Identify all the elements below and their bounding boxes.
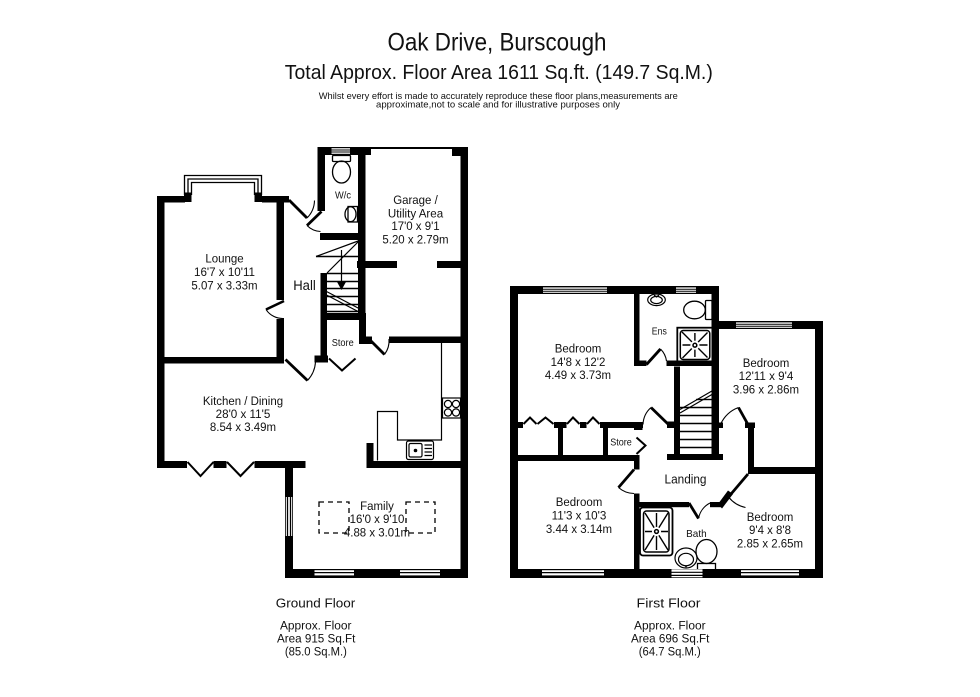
svg-text:Bedroom: Bedroom bbox=[747, 510, 794, 524]
svg-text:16'7 x 10'11: 16'7 x 10'11 bbox=[194, 265, 255, 279]
svg-text:5.07 x 3.33m: 5.07 x 3.33m bbox=[191, 279, 257, 293]
svg-text:Bedroom: Bedroom bbox=[743, 356, 790, 370]
svg-text:(64.7 Sq.M.): (64.7 Sq.M.) bbox=[639, 645, 701, 659]
svg-text:Family: Family bbox=[360, 499, 395, 513]
svg-text:Kitchen / Dining: Kitchen / Dining bbox=[203, 394, 283, 408]
svg-text:4.88 x 3.01m: 4.88 x 3.01m bbox=[344, 525, 410, 539]
svg-text:12'11 x 9'4: 12'11 x 9'4 bbox=[739, 369, 794, 383]
svg-text:Ground Floor: Ground Floor bbox=[276, 595, 356, 610]
svg-text:Store: Store bbox=[332, 338, 354, 349]
svg-text:2.85 x 2.65m: 2.85 x 2.65m bbox=[737, 537, 803, 551]
svg-text:(85.0 Sq.M.): (85.0 Sq.M.) bbox=[285, 645, 347, 659]
svg-text:Bath: Bath bbox=[686, 528, 707, 540]
svg-text:11'3 x 10'3: 11'3 x 10'3 bbox=[552, 508, 607, 522]
svg-text:Landing: Landing bbox=[665, 472, 707, 487]
svg-text:Lounge: Lounge bbox=[205, 251, 243, 265]
svg-text:approximate,not to scale and f: approximate,not to scale and for illustr… bbox=[376, 100, 620, 110]
svg-text:16'0 x 9'10: 16'0 x 9'10 bbox=[350, 512, 405, 526]
svg-text:Garage /: Garage / bbox=[393, 193, 438, 207]
svg-text:Oak Drive, Burscough: Oak Drive, Burscough bbox=[388, 29, 607, 57]
svg-text:8.54 x 3.49m: 8.54 x 3.49m bbox=[210, 420, 276, 434]
svg-text:17'0 x 9'1: 17'0 x 9'1 bbox=[391, 219, 439, 233]
svg-text:Area 915 Sq.Ft: Area 915 Sq.Ft bbox=[277, 632, 356, 646]
svg-text:Area 696 Sq.Ft: Area 696 Sq.Ft bbox=[631, 632, 710, 646]
svg-text:4.49 x 3.73m: 4.49 x 3.73m bbox=[545, 368, 611, 382]
svg-text:28'0 x 11'5: 28'0 x 11'5 bbox=[216, 407, 271, 421]
svg-text:Approx. Floor: Approx. Floor bbox=[634, 619, 706, 633]
svg-text:Bedroom: Bedroom bbox=[556, 495, 603, 509]
svg-text:Hall: Hall bbox=[293, 278, 316, 293]
svg-text:Store: Store bbox=[610, 437, 632, 448]
svg-text:9'4 x 8'8: 9'4 x 8'8 bbox=[749, 523, 791, 537]
svg-text:14'8 x 12'2: 14'8 x 12'2 bbox=[551, 355, 606, 369]
svg-text:Bedroom: Bedroom bbox=[555, 342, 602, 356]
svg-text:Ens: Ens bbox=[652, 327, 667, 338]
svg-text:W/c: W/c bbox=[335, 191, 351, 202]
svg-text:Total Approx. Floor Area 1611: Total Approx. Floor Area 1611 Sq.ft. (14… bbox=[285, 61, 713, 84]
svg-text:3.96 x 2.86m: 3.96 x 2.86m bbox=[733, 383, 799, 397]
svg-text:3.44 x 3.14m: 3.44 x 3.14m bbox=[546, 522, 612, 536]
svg-text:5.20 x 2.79m: 5.20 x 2.79m bbox=[382, 233, 448, 247]
svg-text:First Floor: First Floor bbox=[637, 595, 702, 610]
svg-text:Approx. Floor: Approx. Floor bbox=[280, 619, 352, 633]
